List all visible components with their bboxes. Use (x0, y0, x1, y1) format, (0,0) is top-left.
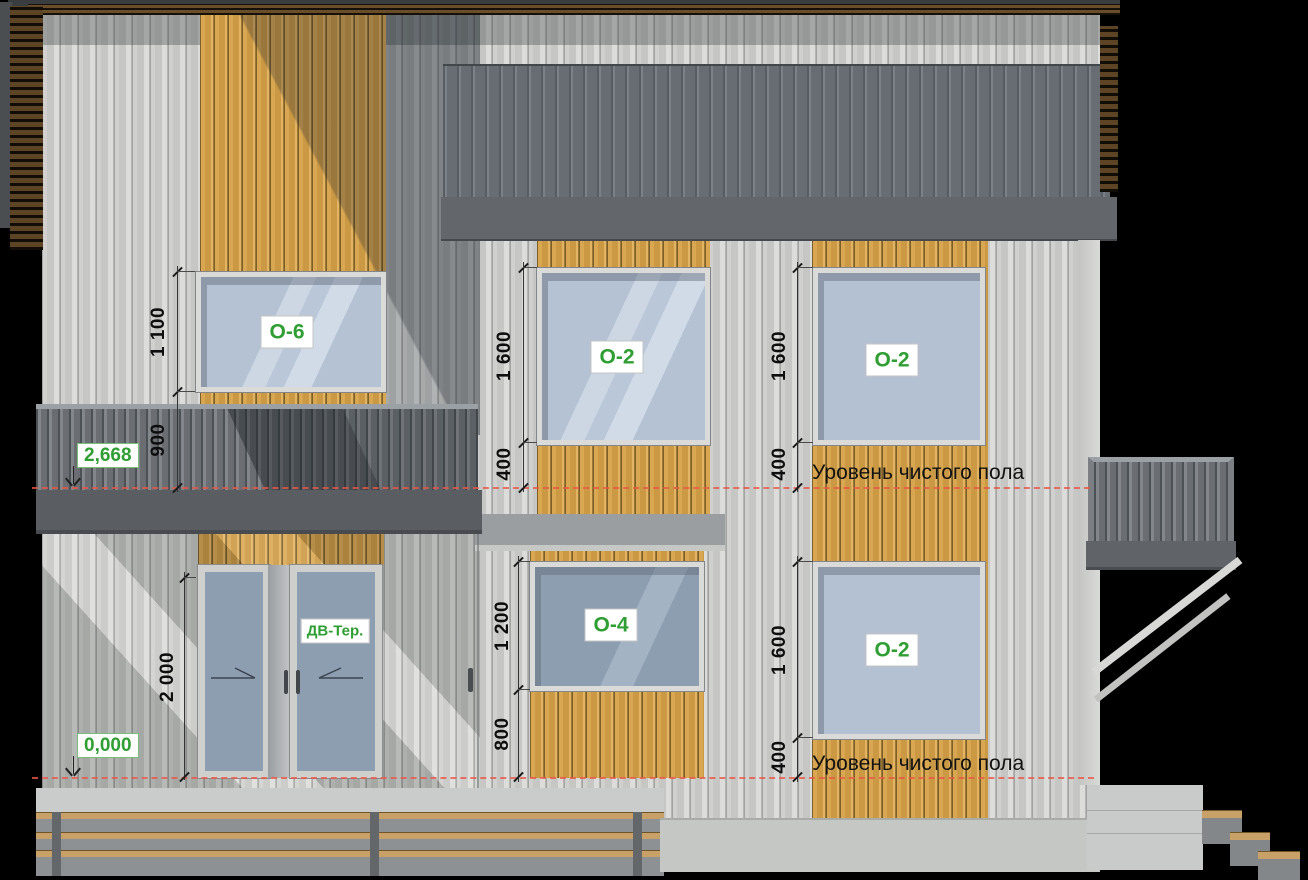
dim-line (518, 556, 519, 782)
dim-o4-height: 1 200 (492, 601, 514, 651)
canopy-post-seam (477, 514, 479, 790)
roof-fascia (441, 197, 1117, 241)
skirt-board (36, 850, 664, 857)
level-marker-stem (73, 466, 74, 484)
platform-seam (1087, 833, 1203, 834)
dim-ext (177, 391, 195, 392)
dim-o2-right-bottom-height: 1 600 (769, 625, 791, 675)
door-swing-icon (207, 664, 259, 682)
deck-post (370, 812, 379, 876)
deck-edge-band (36, 788, 664, 815)
dim-ext (523, 442, 537, 443)
right-balcony-railing (1088, 457, 1234, 541)
tag-terrace-door: ДВ-Тер. (301, 619, 370, 644)
level-marker-ground-floor: 0,000 (77, 733, 139, 758)
dim-o6-height: 1 100 (148, 307, 170, 357)
dim-ext (518, 561, 530, 562)
terrace-door-right (290, 565, 382, 778)
dim-o2-mid-height: 1 600 (494, 331, 516, 381)
level-marker-second-floor: 2,668 (77, 443, 139, 468)
dim-ext (797, 737, 813, 738)
floor-level-label-upper: Уровень чистого пола (812, 462, 1024, 483)
dim-o2-right-top-sill: 400 (769, 447, 791, 480)
deck-post (633, 812, 642, 876)
entry-platform (1087, 785, 1203, 870)
terrace-door-left (198, 565, 270, 778)
dim-ext (184, 577, 196, 578)
level-line-second-floor (32, 487, 1090, 489)
dim-line (797, 556, 798, 782)
dim-ext (797, 561, 813, 562)
roof-edge-wood-right (1100, 26, 1118, 192)
door-handle-left (284, 670, 288, 694)
door-swing-icon (307, 664, 367, 682)
roof-top-wood-strip (28, 4, 1120, 15)
dim-o2-right-top-height: 1 600 (769, 331, 791, 381)
dim-ext (518, 689, 530, 690)
tag-window-o2-mid: О-2 (590, 341, 643, 374)
deck-skirt (36, 812, 664, 876)
skirt-board (36, 832, 664, 839)
floor-level-label-lower: Уровень чистого пола (812, 753, 1024, 774)
roof-band (443, 64, 1110, 200)
dim-ext (797, 267, 813, 268)
skirt-board (36, 812, 664, 819)
dim-line (184, 572, 185, 780)
dim-ext (797, 442, 813, 443)
platform-seam (1087, 810, 1203, 811)
step-riser (1258, 859, 1300, 880)
tag-window-o2-right-top: О-2 (865, 344, 918, 377)
door-handle-right (296, 670, 300, 694)
dim-door-height: 2 000 (157, 652, 179, 702)
right-balcony-fascia (1086, 541, 1236, 570)
dim-ext (523, 267, 537, 268)
dim-o4-sill: 800 (492, 717, 514, 750)
deck-post (52, 812, 61, 876)
tag-window-o2-right-bottom: О-2 (865, 634, 918, 667)
dim-balcony-parapet: 900 (148, 423, 170, 456)
level-marker-stem (73, 756, 74, 774)
right-balcony-strut (1092, 557, 1243, 675)
roof-wood-column-left (10, 6, 43, 250)
elevation-drawing: 2,668 0,000 Уровень чистого пола Уровень… (0, 0, 1308, 880)
tag-window-o4: О-4 (584, 609, 637, 642)
right-balcony-strut-lower (1094, 593, 1231, 702)
balcony-fascia (36, 490, 482, 534)
dim-ext (177, 271, 195, 272)
foundation (660, 818, 1100, 872)
tag-window-o6: О-6 (260, 316, 313, 349)
dim-line (523, 262, 524, 492)
dim-line (797, 262, 798, 492)
dim-o2-mid-sill: 400 (494, 447, 516, 480)
side-door-handle (468, 668, 473, 692)
canopy-band (475, 514, 725, 551)
dim-line (177, 266, 178, 492)
level-line-ground-floor (32, 777, 1094, 779)
dim-o2-right-bottom-sill: 400 (769, 740, 791, 773)
